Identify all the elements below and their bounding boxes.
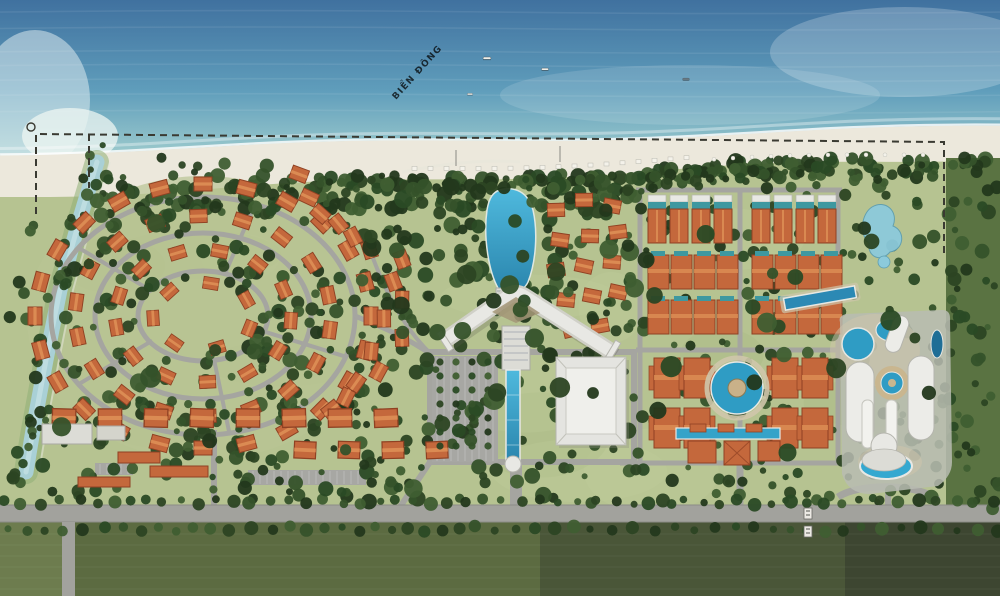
tree — [875, 522, 889, 536]
tree — [141, 495, 151, 505]
tree — [327, 346, 335, 354]
shop-row-building — [78, 477, 130, 487]
villa-roof-ridge — [547, 208, 564, 212]
road-sign-marker — [804, 508, 812, 519]
tree — [224, 182, 236, 194]
tree — [193, 498, 205, 510]
townhouse-pool-deck — [670, 202, 688, 209]
tree — [176, 417, 186, 427]
tree — [839, 189, 851, 201]
tree — [265, 454, 277, 466]
tree — [172, 527, 181, 536]
tree — [103, 174, 113, 184]
tree — [954, 286, 961, 293]
tree — [372, 471, 379, 478]
tree — [337, 487, 347, 497]
tree — [311, 289, 320, 298]
tree — [661, 178, 673, 190]
tree — [370, 522, 379, 531]
tree — [731, 494, 743, 506]
tree — [7, 471, 20, 484]
tree — [630, 464, 641, 475]
tree — [543, 451, 556, 464]
tree — [381, 229, 392, 240]
villa-roof-ridge — [194, 182, 212, 185]
beach-umbrella — [807, 153, 811, 157]
villa-building — [382, 441, 404, 458]
tree — [353, 409, 360, 416]
tree — [388, 526, 396, 534]
tree — [14, 498, 26, 510]
tree — [126, 496, 136, 506]
tree — [127, 463, 138, 474]
tree — [768, 500, 776, 508]
villa-building — [147, 310, 160, 326]
grid-villa-ridge — [671, 314, 692, 318]
tree — [233, 470, 242, 479]
tree — [623, 187, 633, 197]
tree — [354, 526, 365, 537]
villa-building — [364, 307, 378, 325]
tree — [109, 259, 117, 267]
main-road — [0, 505, 1000, 522]
tree — [776, 347, 791, 362]
townhouse-pool-deck — [774, 202, 792, 209]
tree — [625, 272, 636, 283]
tree — [931, 259, 938, 266]
tree — [353, 185, 360, 192]
grid-villa-pool — [720, 296, 734, 301]
tree — [443, 179, 460, 196]
villa-building — [426, 441, 448, 459]
tree — [424, 497, 438, 511]
tree — [367, 176, 376, 185]
grid-villa-pool — [697, 251, 711, 256]
tree — [484, 372, 491, 379]
tree — [793, 468, 803, 478]
tree — [748, 498, 762, 512]
tree — [118, 357, 126, 365]
tree — [865, 276, 874, 285]
tree — [5, 525, 12, 532]
tree — [52, 341, 61, 350]
tree — [244, 521, 258, 535]
tree — [316, 180, 324, 188]
tree — [786, 182, 797, 193]
tree — [497, 496, 505, 504]
tree — [468, 386, 475, 393]
tree — [600, 240, 619, 259]
tree — [484, 428, 491, 435]
tree — [225, 350, 237, 362]
tree — [61, 278, 72, 289]
villa-roof-ridge — [369, 307, 372, 325]
tree — [300, 398, 308, 406]
tree — [963, 465, 970, 472]
tree — [536, 174, 546, 184]
villa-roof-ridge — [581, 234, 598, 238]
tree — [356, 274, 368, 286]
tree — [396, 466, 405, 475]
tree — [681, 171, 690, 180]
grid-villa-pool — [801, 251, 815, 256]
tree — [912, 197, 922, 207]
tree — [229, 240, 243, 254]
tree — [11, 446, 24, 459]
tree — [837, 499, 846, 508]
tree — [524, 468, 540, 484]
tree — [326, 178, 334, 186]
tree — [948, 160, 958, 170]
tree — [803, 490, 811, 498]
tree — [319, 523, 329, 533]
villa-building — [190, 209, 208, 223]
tree — [881, 191, 890, 200]
grid-villa-ridge — [717, 269, 738, 273]
tree — [436, 400, 443, 407]
tree — [656, 494, 670, 508]
tree — [452, 372, 459, 379]
tree — [955, 236, 969, 250]
tree — [723, 475, 736, 488]
tree — [468, 372, 475, 379]
tree — [209, 474, 215, 480]
tree — [712, 489, 721, 498]
tree — [547, 182, 560, 195]
tree — [273, 308, 283, 318]
beach-umbrella — [788, 154, 792, 158]
tree — [436, 358, 443, 365]
tree — [488, 383, 506, 401]
tree — [244, 387, 253, 396]
tree — [351, 169, 365, 183]
tree — [136, 525, 147, 536]
tree — [767, 268, 778, 279]
tree — [441, 497, 453, 509]
villa-roof-ridge — [328, 416, 351, 421]
tree — [587, 313, 599, 325]
tree — [960, 264, 972, 276]
tree — [42, 417, 49, 424]
tree — [219, 158, 231, 170]
tree — [419, 252, 432, 265]
tree — [547, 263, 565, 281]
tree — [204, 523, 216, 535]
hotel-atrium — [502, 326, 530, 370]
grid-villa-pool — [755, 251, 769, 256]
beach-pavilion — [428, 166, 433, 170]
tree — [796, 169, 805, 178]
beach-umbrella — [731, 156, 735, 160]
tree — [249, 452, 260, 463]
tree — [490, 321, 498, 329]
tree — [837, 525, 848, 536]
tree — [773, 171, 787, 185]
pool-pavilion — [718, 424, 734, 432]
tree — [406, 182, 421, 197]
tree — [591, 496, 600, 505]
tree — [526, 196, 538, 208]
villa-building — [202, 276, 219, 290]
tree — [437, 525, 449, 537]
natural-pond-small — [878, 256, 890, 268]
courtyard-villa-ridge — [802, 375, 828, 380]
tree — [635, 203, 647, 215]
tree — [288, 475, 303, 490]
tree — [261, 336, 272, 347]
tree — [471, 234, 479, 242]
villa-building — [284, 312, 298, 329]
ring-pool-island — [888, 379, 896, 387]
tree — [247, 344, 263, 360]
tree — [304, 318, 314, 328]
villa-building — [609, 224, 628, 239]
tree — [802, 498, 812, 508]
villa-building — [28, 307, 42, 325]
tree — [43, 293, 53, 303]
tree — [546, 397, 557, 408]
tree — [436, 372, 443, 379]
sea-haze — [500, 65, 880, 125]
tree — [568, 450, 577, 459]
tree — [416, 322, 430, 336]
villa-building — [328, 409, 352, 428]
grid-villa-pool — [755, 296, 769, 301]
villa-roof-ridge — [236, 416, 259, 420]
tree — [57, 526, 68, 537]
tree — [594, 174, 611, 191]
boat — [467, 93, 473, 95]
tree — [215, 456, 223, 464]
tree — [732, 522, 740, 530]
tree — [897, 164, 911, 178]
villa-building — [70, 327, 87, 346]
tree — [623, 323, 633, 333]
tree — [812, 181, 820, 189]
townhouse-roof-cap — [774, 195, 792, 202]
tree — [120, 174, 127, 181]
tree — [334, 272, 346, 284]
tree — [389, 243, 405, 259]
beach-pavilion — [492, 166, 497, 170]
tree — [967, 324, 978, 335]
tree — [954, 527, 961, 534]
tree — [516, 250, 529, 263]
tree — [913, 171, 922, 180]
grid-villa-ridge — [648, 314, 669, 318]
tree — [107, 463, 120, 476]
tree — [188, 522, 199, 533]
tree — [212, 235, 220, 243]
tree — [587, 387, 599, 399]
tree — [603, 310, 610, 317]
tree — [729, 163, 740, 174]
tree — [260, 226, 267, 233]
villa-roof-ridge — [190, 214, 207, 218]
tree — [554, 499, 562, 507]
tree — [981, 399, 988, 406]
tree — [529, 522, 541, 534]
tree — [982, 277, 990, 285]
tree — [894, 258, 903, 267]
villa-building — [551, 232, 570, 248]
tree — [76, 366, 83, 373]
tree — [154, 523, 163, 532]
tree — [484, 414, 491, 421]
townhouse-pool-deck — [752, 202, 770, 209]
tree — [649, 171, 661, 183]
tree — [927, 170, 938, 181]
tree — [748, 521, 759, 532]
tree — [621, 300, 632, 311]
tree — [784, 495, 798, 509]
tree — [242, 279, 252, 289]
beach-umbrella — [902, 153, 906, 157]
tree — [359, 460, 369, 470]
beach-pavilion — [540, 165, 545, 169]
tree — [611, 325, 622, 336]
reflecting-pool — [506, 370, 520, 462]
beach-pavilion — [524, 166, 529, 170]
tree — [912, 493, 926, 507]
tree — [209, 344, 221, 356]
tree — [348, 295, 360, 307]
tree — [719, 339, 726, 346]
townhouse-roof-cap — [752, 195, 770, 202]
tree — [954, 451, 962, 459]
tree — [680, 496, 688, 504]
tree — [945, 265, 958, 278]
tree — [582, 473, 588, 479]
tree — [953, 310, 967, 324]
tree — [268, 525, 278, 535]
tree — [629, 393, 637, 401]
tree — [991, 282, 998, 289]
tree — [59, 359, 69, 369]
tree — [638, 251, 655, 268]
waterpark-base — [862, 449, 906, 471]
tree — [282, 332, 293, 343]
beach-umbrella — [864, 153, 868, 157]
tree — [436, 442, 443, 449]
tree — [284, 495, 293, 504]
tree — [974, 485, 987, 498]
shop-row-building — [150, 466, 208, 477]
tree — [116, 180, 128, 192]
tree — [420, 352, 435, 367]
tree — [418, 267, 434, 283]
tree — [858, 222, 871, 235]
tree — [757, 313, 777, 333]
villa-building — [282, 409, 306, 428]
tree — [165, 198, 173, 206]
tree — [671, 523, 679, 531]
tree — [93, 499, 103, 509]
tree — [738, 251, 749, 262]
tree — [914, 520, 928, 534]
tree — [479, 472, 487, 480]
villa-building — [109, 318, 124, 336]
tree — [486, 293, 502, 309]
townhouse-roof-cap — [714, 195, 732, 202]
tree — [305, 302, 318, 315]
tree — [126, 299, 136, 309]
tree — [364, 230, 378, 244]
tree — [452, 358, 459, 365]
tree — [622, 239, 635, 252]
tree — [55, 495, 64, 504]
tree — [666, 474, 679, 487]
tree — [24, 443, 32, 451]
tree — [603, 298, 612, 307]
tree — [548, 522, 562, 536]
tree — [341, 188, 351, 198]
tree — [385, 476, 396, 487]
tree — [299, 216, 309, 226]
tree — [266, 496, 276, 506]
tree — [636, 410, 649, 423]
tree — [761, 182, 773, 194]
pool-pavilion — [746, 424, 762, 432]
tree — [513, 302, 528, 317]
tree — [947, 295, 957, 305]
tree — [975, 244, 990, 259]
boat — [541, 68, 548, 71]
tree — [686, 341, 696, 351]
tree — [429, 324, 445, 340]
villa-building — [575, 193, 592, 206]
tree — [452, 414, 459, 421]
tree — [972, 524, 984, 536]
tree — [468, 442, 475, 449]
tree — [390, 495, 400, 505]
villa-building — [211, 243, 229, 258]
tree — [454, 322, 471, 339]
tree — [219, 409, 230, 420]
tree — [109, 496, 122, 509]
tree — [972, 380, 979, 387]
tree — [363, 421, 370, 428]
tree — [510, 475, 524, 489]
tree — [209, 485, 217, 493]
tree — [543, 224, 552, 233]
tree — [386, 359, 399, 372]
tree — [949, 196, 960, 207]
tree — [178, 161, 185, 168]
tree — [745, 299, 760, 314]
villa-building — [364, 342, 379, 360]
villa-building — [322, 321, 338, 340]
grid-villa-pool — [674, 251, 688, 256]
tree — [715, 500, 724, 509]
tree — [401, 522, 414, 535]
tree — [927, 230, 940, 243]
clubhouse-building — [758, 441, 780, 461]
beach-pavilion — [412, 166, 417, 170]
tree — [471, 220, 485, 234]
tree — [737, 477, 747, 487]
tree — [887, 169, 898, 180]
villa-roof-ridge — [144, 416, 168, 421]
tree — [454, 249, 468, 263]
tree — [436, 414, 443, 421]
tree — [422, 414, 428, 420]
tree — [690, 526, 698, 534]
tree — [286, 488, 293, 495]
tree — [569, 251, 578, 260]
villa-roof-ridge — [33, 307, 36, 325]
tree — [304, 370, 313, 379]
